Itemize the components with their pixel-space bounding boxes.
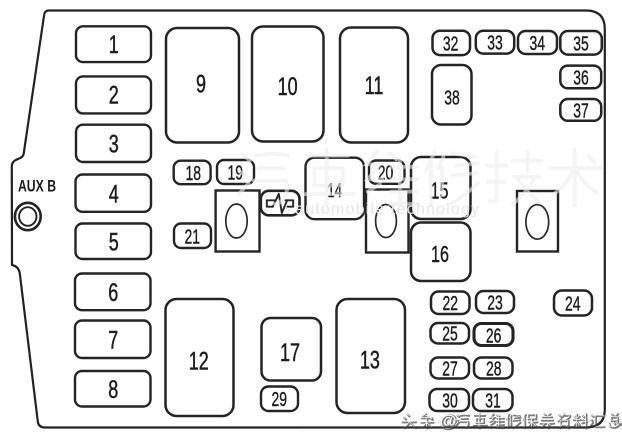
svg-text:2: 2: [109, 80, 119, 109]
svg-text:9: 9: [196, 70, 206, 99]
svg-text:21: 21: [185, 225, 200, 248]
svg-text:11: 11: [365, 71, 384, 100]
svg-text:17: 17: [280, 338, 300, 367]
svg-text:37: 37: [573, 99, 588, 122]
svg-text:23: 23: [487, 291, 502, 314]
svg-text:29: 29: [272, 387, 287, 410]
svg-text:34: 34: [530, 31, 546, 54]
svg-text:26: 26: [486, 324, 501, 347]
svg-text:24: 24: [565, 292, 581, 315]
svg-text:30: 30: [442, 389, 458, 412]
svg-text:AUX B: AUX B: [18, 178, 56, 196]
svg-text:31: 31: [485, 389, 500, 412]
svg-text:automobile technology: automobile technology: [295, 201, 480, 218]
svg-text:12: 12: [189, 347, 209, 376]
svg-text:7: 7: [108, 325, 118, 354]
svg-text:5: 5: [109, 227, 119, 256]
svg-text:4: 4: [109, 179, 119, 208]
svg-text:8: 8: [108, 375, 118, 404]
svg-text:10: 10: [278, 72, 298, 101]
svg-text:36: 36: [573, 66, 588, 89]
svg-text:16: 16: [431, 243, 449, 268]
svg-text:28: 28: [486, 357, 501, 380]
svg-text:6: 6: [108, 278, 118, 307]
svg-text:32: 32: [443, 32, 458, 55]
svg-text:38: 38: [444, 86, 459, 109]
svg-text:18: 18: [186, 161, 201, 184]
svg-text:25: 25: [442, 322, 457, 345]
svg-text:35: 35: [573, 32, 588, 55]
svg-text:27: 27: [442, 357, 457, 380]
svg-text:33: 33: [487, 31, 502, 54]
svg-text:13: 13: [360, 346, 380, 375]
svg-text:1: 1: [109, 30, 119, 59]
svg-text:3: 3: [109, 130, 119, 159]
svg-text:22: 22: [442, 291, 457, 314]
